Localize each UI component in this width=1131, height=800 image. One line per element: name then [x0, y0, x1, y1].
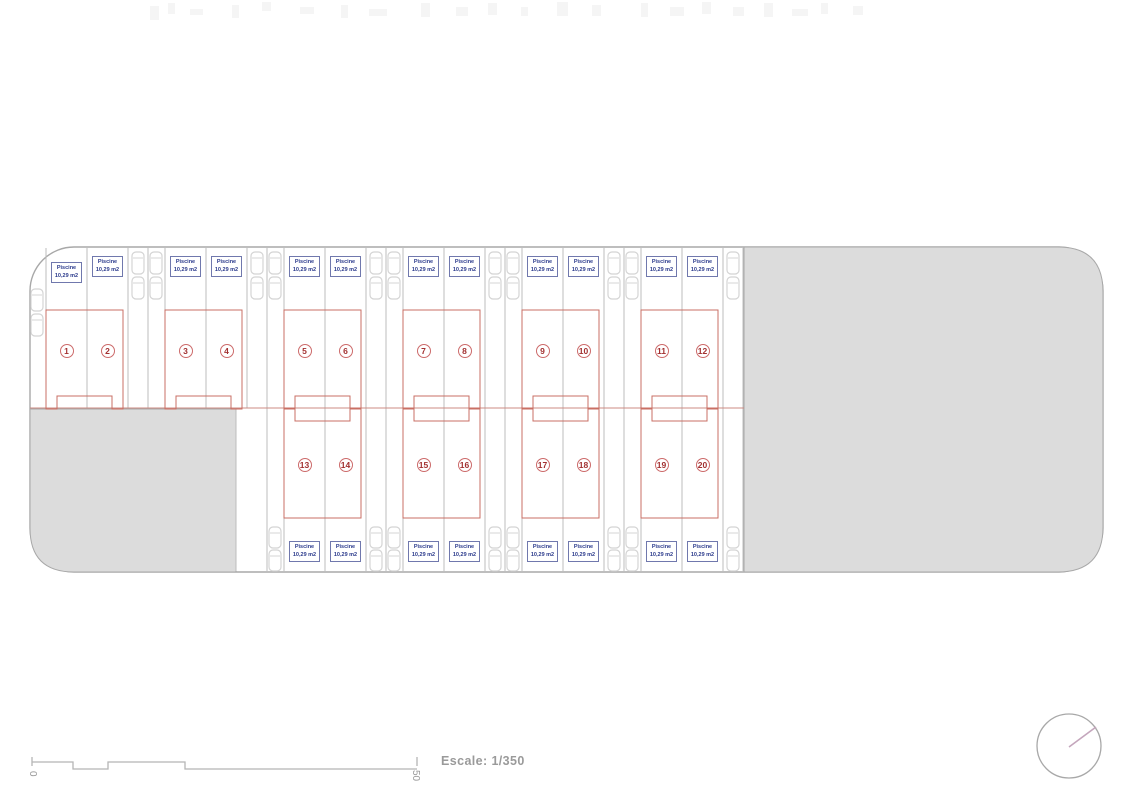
- pool-label-name: Piscine: [647, 544, 676, 551]
- scan-artifact: [670, 7, 684, 16]
- scan-artifact: [150, 6, 159, 20]
- scan-artifact: [764, 3, 773, 17]
- pool-label-area: 10,29 m2: [450, 267, 479, 274]
- unit-number-badge: 7: [417, 344, 431, 358]
- scan-artifact: [521, 7, 528, 16]
- pool-area-label: Piscine10,29 m2: [527, 256, 558, 277]
- pool-label-name: Piscine: [450, 259, 479, 266]
- pool-label-area: 10,29 m2: [647, 552, 676, 559]
- pool-area-label: Piscine10,29 m2: [687, 541, 718, 562]
- scan-artifact: [369, 9, 387, 16]
- scan-artifact: [792, 9, 808, 16]
- scan-artifact: [488, 3, 497, 15]
- unit-number-badge: 11: [655, 344, 669, 358]
- scan-artifact: [190, 9, 203, 15]
- unit-number-badge: 1: [60, 344, 74, 358]
- pool-area-label: Piscine10,29 m2: [568, 541, 599, 562]
- unit-number-badge: 12: [696, 344, 710, 358]
- gray-area-bottom-left: [30, 409, 236, 572]
- unit-number-badge: 9: [536, 344, 550, 358]
- pool-label-name: Piscine: [528, 544, 557, 551]
- pool-label-area: 10,29 m2: [331, 267, 360, 274]
- site-plan-drawing: Piscine10,29 m2Piscine10,29 m212Piscine1…: [0, 0, 1131, 800]
- unit-number-badge: 17: [536, 458, 550, 472]
- pool-label-name: Piscine: [52, 265, 81, 272]
- pool-label-name: Piscine: [290, 544, 319, 551]
- unit-number-badge: 2: [101, 344, 115, 358]
- pool-label-name: Piscine: [171, 259, 200, 266]
- unit-number-badge: 13: [298, 458, 312, 472]
- pool-area-label: Piscine10,29 m2: [330, 256, 361, 277]
- pool-area-label: Piscine10,29 m2: [449, 541, 480, 562]
- pool-label-area: 10,29 m2: [528, 267, 557, 274]
- unit-number-badge: 19: [655, 458, 669, 472]
- pool-area-label: Piscine10,29 m2: [330, 541, 361, 562]
- pool-label-name: Piscine: [688, 544, 717, 551]
- pool-area-label: Piscine10,29 m2: [92, 256, 123, 277]
- scalebar-end-label: 50: [410, 770, 421, 781]
- scale-text: Escale: 1/350: [441, 754, 525, 768]
- pool-area-label: Piscine10,29 m2: [170, 256, 201, 277]
- pool-area-label: Piscine10,29 m2: [289, 541, 320, 562]
- scan-artifact: [232, 5, 239, 18]
- pool-label-area: 10,29 m2: [569, 267, 598, 274]
- scan-artifact: [341, 5, 348, 18]
- pool-label-area: 10,29 m2: [290, 267, 319, 274]
- scan-artifact: [821, 3, 828, 14]
- pool-label-area: 10,29 m2: [409, 267, 438, 274]
- pool-area-label: Piscine10,29 m2: [646, 256, 677, 277]
- pool-label-area: 10,29 m2: [290, 552, 319, 559]
- unit-number-badge: 16: [458, 458, 472, 472]
- scalebar-start-label: 0: [27, 771, 38, 777]
- unit-number-badge: 20: [696, 458, 710, 472]
- pool-area-label: Piscine10,29 m2: [408, 541, 439, 562]
- pool-label-name: Piscine: [93, 259, 122, 266]
- pool-label-area: 10,29 m2: [688, 552, 717, 559]
- site-plan-svg: [0, 0, 1131, 800]
- pool-label-area: 10,29 m2: [528, 552, 557, 559]
- pool-area-label: Piscine10,29 m2: [646, 541, 677, 562]
- pool-label-name: Piscine: [290, 259, 319, 266]
- unit-number-badge: 5: [298, 344, 312, 358]
- pool-label-name: Piscine: [409, 259, 438, 266]
- scale-bar: [32, 757, 417, 769]
- unit-number-badge: 6: [339, 344, 353, 358]
- scan-artifact: [592, 5, 601, 16]
- scan-artifact: [262, 2, 271, 11]
- unit-number-badge: 10: [577, 344, 591, 358]
- pool-area-label: Piscine10,29 m2: [527, 541, 558, 562]
- pool-label-area: 10,29 m2: [647, 267, 676, 274]
- pool-area-label: Piscine10,29 m2: [568, 256, 599, 277]
- pool-area-label: Piscine10,29 m2: [408, 256, 439, 277]
- pool-area-label: Piscine10,29 m2: [51, 262, 82, 283]
- scan-artifact: [557, 2, 568, 16]
- scan-artifact: [733, 7, 744, 16]
- pool-label-name: Piscine: [409, 544, 438, 551]
- pool-label-area: 10,29 m2: [93, 267, 122, 274]
- pool-label-name: Piscine: [569, 259, 598, 266]
- pool-label-name: Piscine: [331, 259, 360, 266]
- pool-label-name: Piscine: [569, 544, 598, 551]
- pool-label-name: Piscine: [688, 259, 717, 266]
- scan-artifact: [702, 2, 711, 14]
- pool-label-area: 10,29 m2: [171, 267, 200, 274]
- scan-artifact: [168, 3, 175, 14]
- pool-area-label: Piscine10,29 m2: [289, 256, 320, 277]
- scan-artifact: [300, 7, 314, 14]
- unit-number-badge: 14: [339, 458, 353, 472]
- scan-artifact: [641, 3, 648, 17]
- compass-needle: [1069, 727, 1096, 747]
- pool-label-name: Piscine: [331, 544, 360, 551]
- pool-label-area: 10,29 m2: [688, 267, 717, 274]
- unit-number-badge: 15: [417, 458, 431, 472]
- unit-number-badge: 3: [179, 344, 193, 358]
- scan-artifact: [853, 6, 863, 15]
- scan-artifact: [456, 7, 468, 16]
- unit-number-badge: 8: [458, 344, 472, 358]
- pool-label-name: Piscine: [450, 544, 479, 551]
- unit-number-badge: 18: [577, 458, 591, 472]
- pool-label-area: 10,29 m2: [409, 552, 438, 559]
- pool-label-area: 10,29 m2: [331, 552, 360, 559]
- unit-number-badge: 4: [220, 344, 234, 358]
- pool-label-name: Piscine: [528, 259, 557, 266]
- pool-label-area: 10,29 m2: [569, 552, 598, 559]
- gray-area-right: [744, 247, 1103, 572]
- pool-label-name: Piscine: [647, 259, 676, 266]
- pool-area-label: Piscine10,29 m2: [211, 256, 242, 277]
- pool-area-label: Piscine10,29 m2: [687, 256, 718, 277]
- pool-area-label: Piscine10,29 m2: [449, 256, 480, 277]
- scan-artifact: [421, 3, 430, 17]
- pool-label-name: Piscine: [212, 259, 241, 266]
- pool-label-area: 10,29 m2: [450, 552, 479, 559]
- compass-circle: [1037, 714, 1101, 778]
- pool-label-area: 10,29 m2: [52, 273, 81, 280]
- pool-label-area: 10,29 m2: [212, 267, 241, 274]
